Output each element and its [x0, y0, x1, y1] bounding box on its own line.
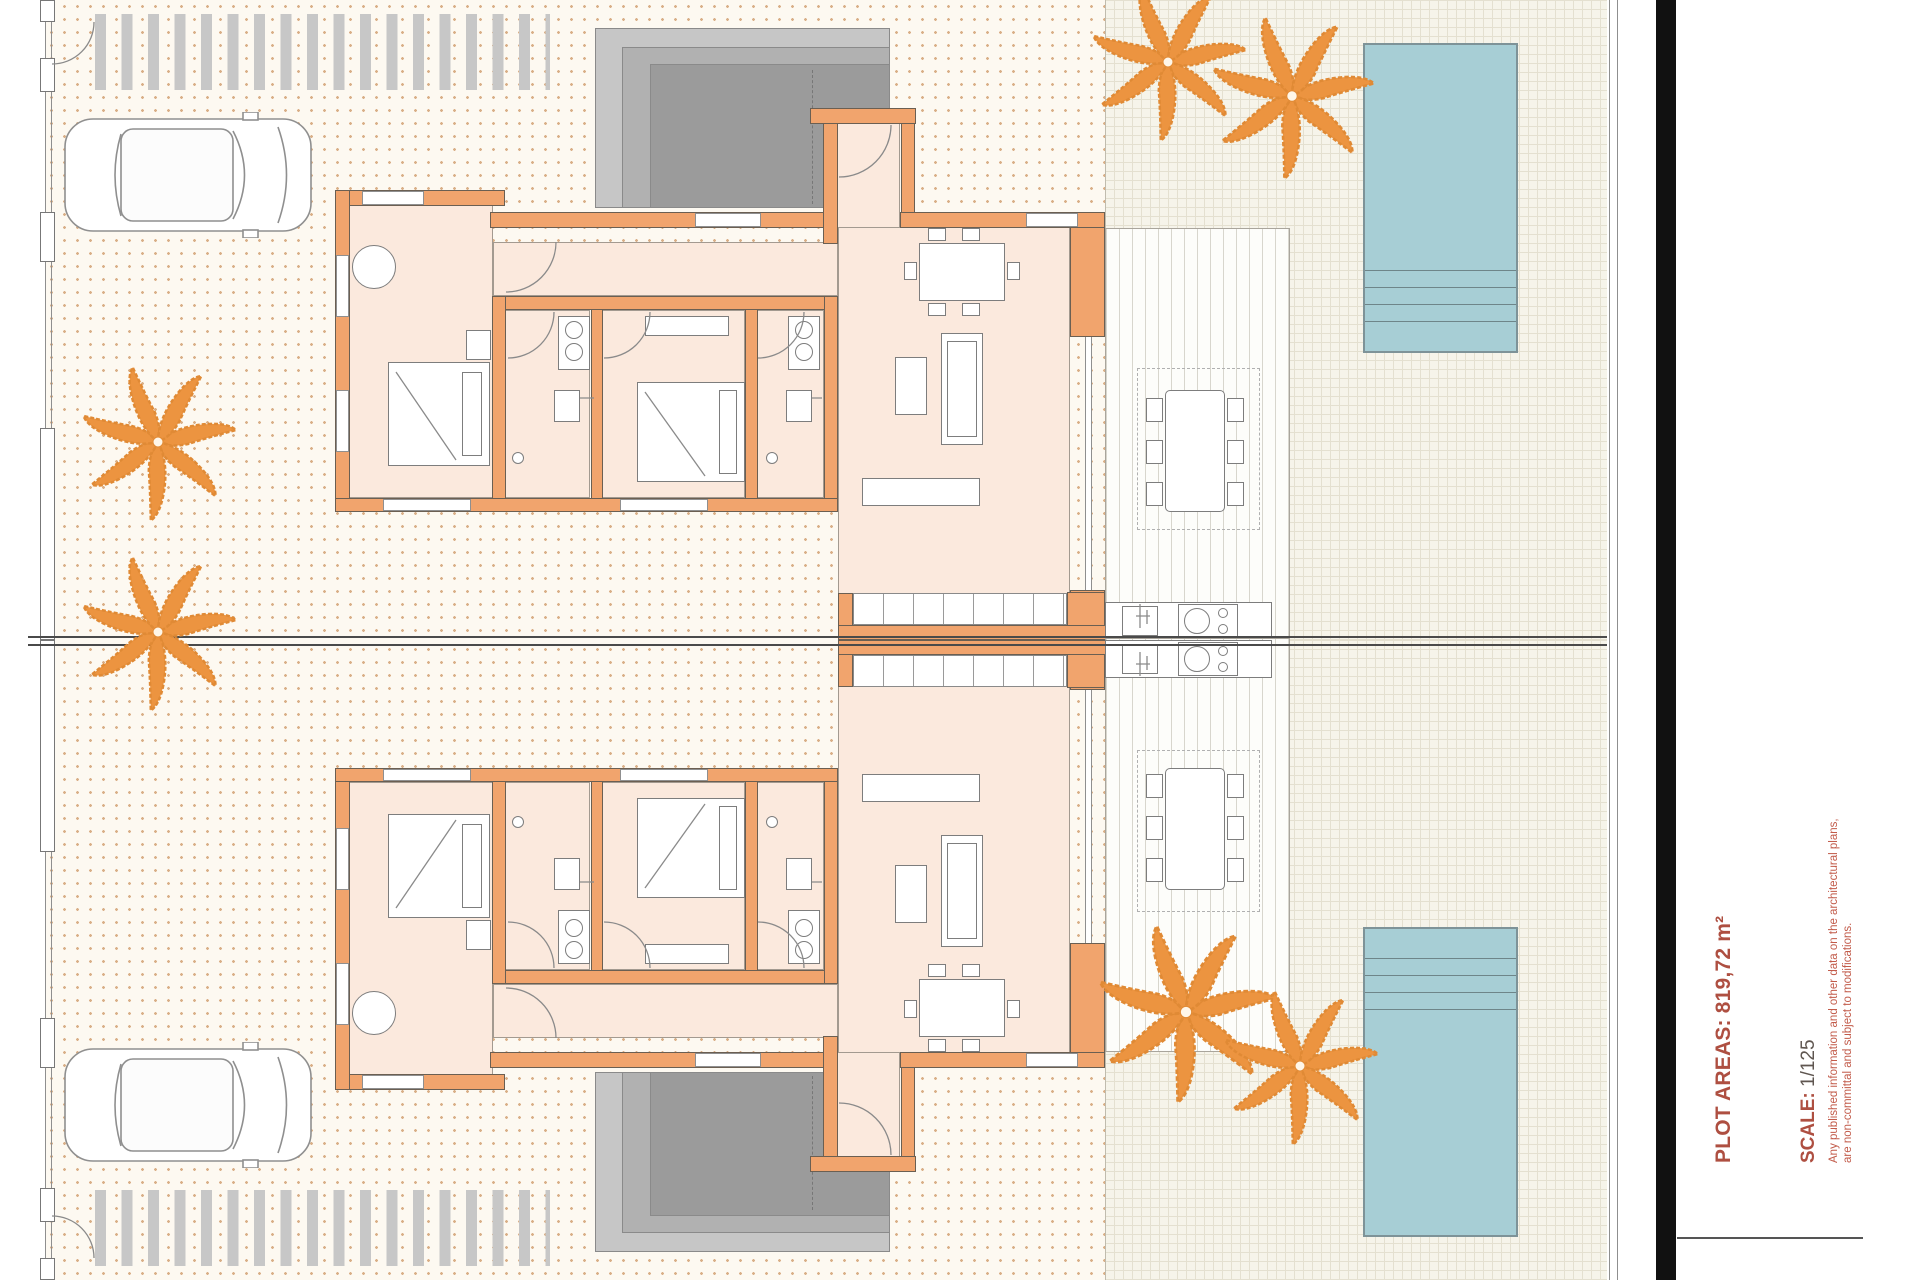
sheet-border-line — [1617, 0, 1618, 1280]
palm-tree-icon — [81, 555, 236, 713]
title-block-rule — [1677, 1237, 1863, 1239]
title-block-bar — [1656, 0, 1676, 1280]
palm-tree-icon — [1097, 923, 1276, 1104]
scale-text: SCALE: 1/125 — [1798, 1039, 1820, 1163]
palm-tree-icon — [81, 365, 236, 523]
sheet-border-line — [1609, 0, 1610, 1280]
scale-value: 1/125 — [1798, 1039, 1819, 1092]
plot-areas-value: 819,72 m² — [1712, 916, 1735, 1020]
palm-tree-icon — [1211, 15, 1374, 180]
disclaimer-text: Any published information and other data… — [1828, 818, 1855, 1163]
disclaimer-line-1: Any published information and other data… — [1828, 818, 1842, 1163]
floor-plan-sheet: PLOT AREAS: 819,72 m² SCALE: 1/125 Any p… — [0, 0, 1920, 1280]
disclaimer-line-2: are non-committal and subject to modific… — [1842, 818, 1856, 1163]
plot-areas-text: PLOT AREAS: 819,72 m² — [1712, 916, 1736, 1163]
palm-trees-overlay — [0, 0, 1607, 1280]
plot-areas-label: PLOT AREAS: — [1712, 1019, 1735, 1163]
scale-label: SCALE: — [1798, 1092, 1819, 1163]
